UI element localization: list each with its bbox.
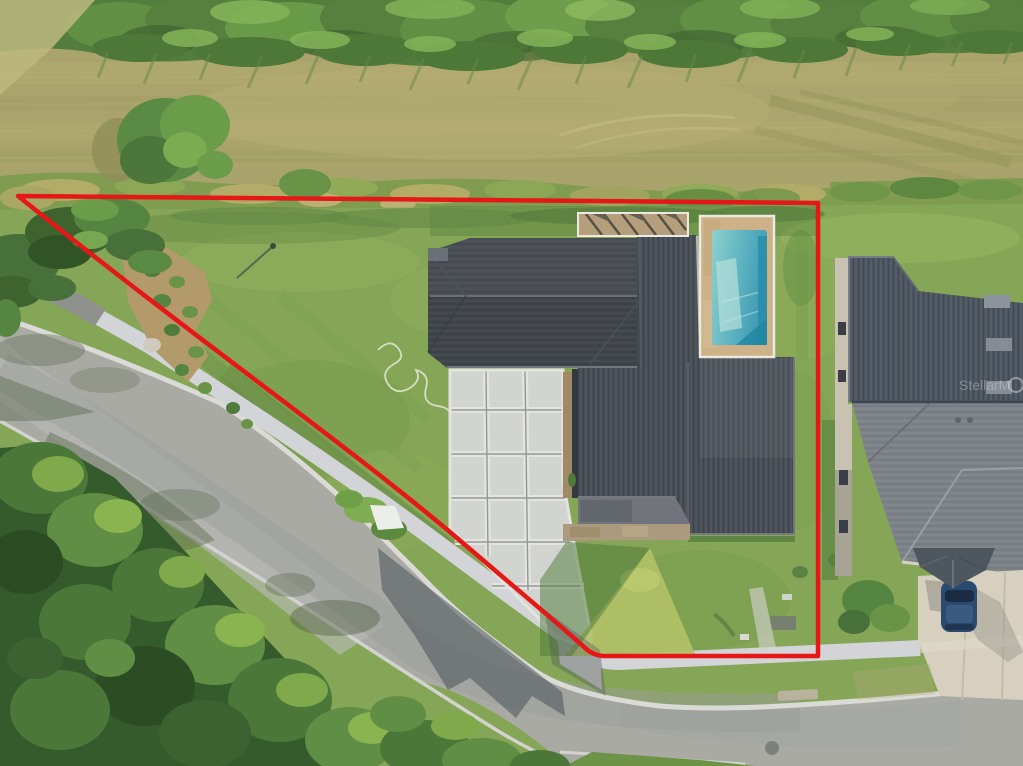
svg-text:StellarM: StellarM	[959, 377, 1010, 393]
